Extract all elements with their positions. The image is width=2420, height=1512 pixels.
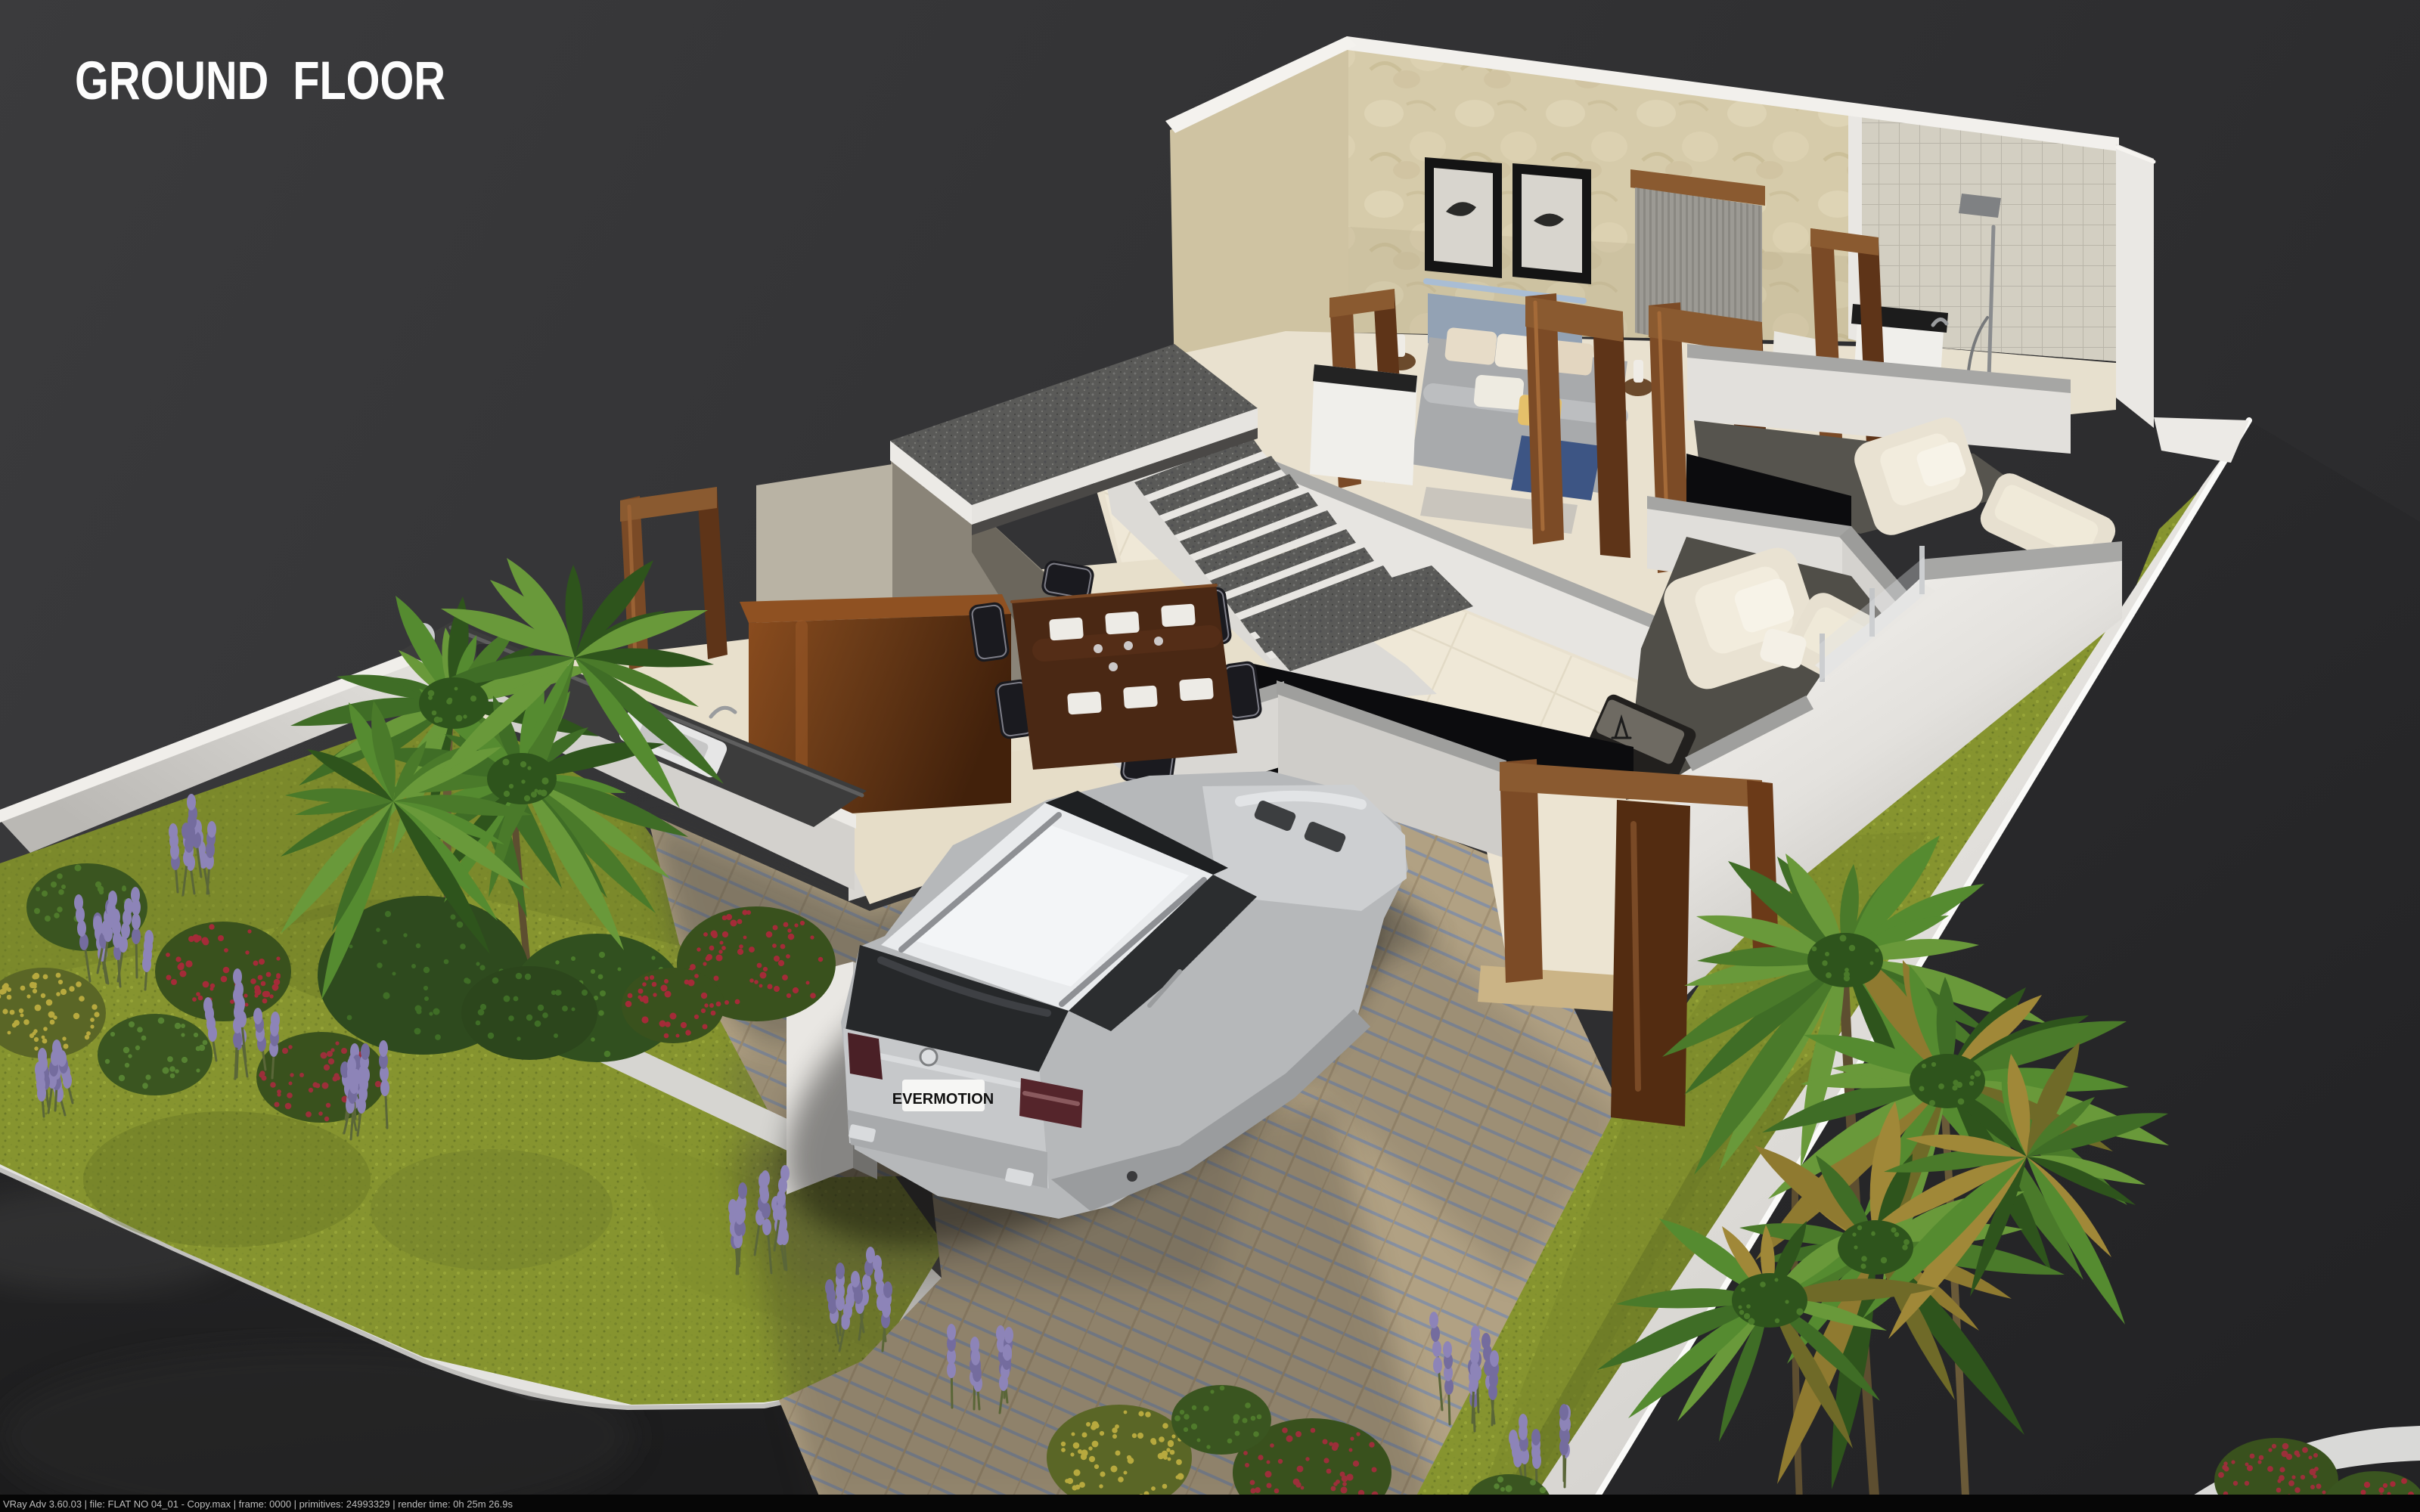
svg-text:GROUND FLOOR: GROUND FLOOR	[75, 51, 445, 111]
svg-text:EVERMOTION: EVERMOTION	[892, 1091, 994, 1108]
svg-text:VRay Adv 3.60.03 | file: FLAT: VRay Adv 3.60.03 | file: FLAT NO 04_01 -…	[3, 1498, 513, 1510]
